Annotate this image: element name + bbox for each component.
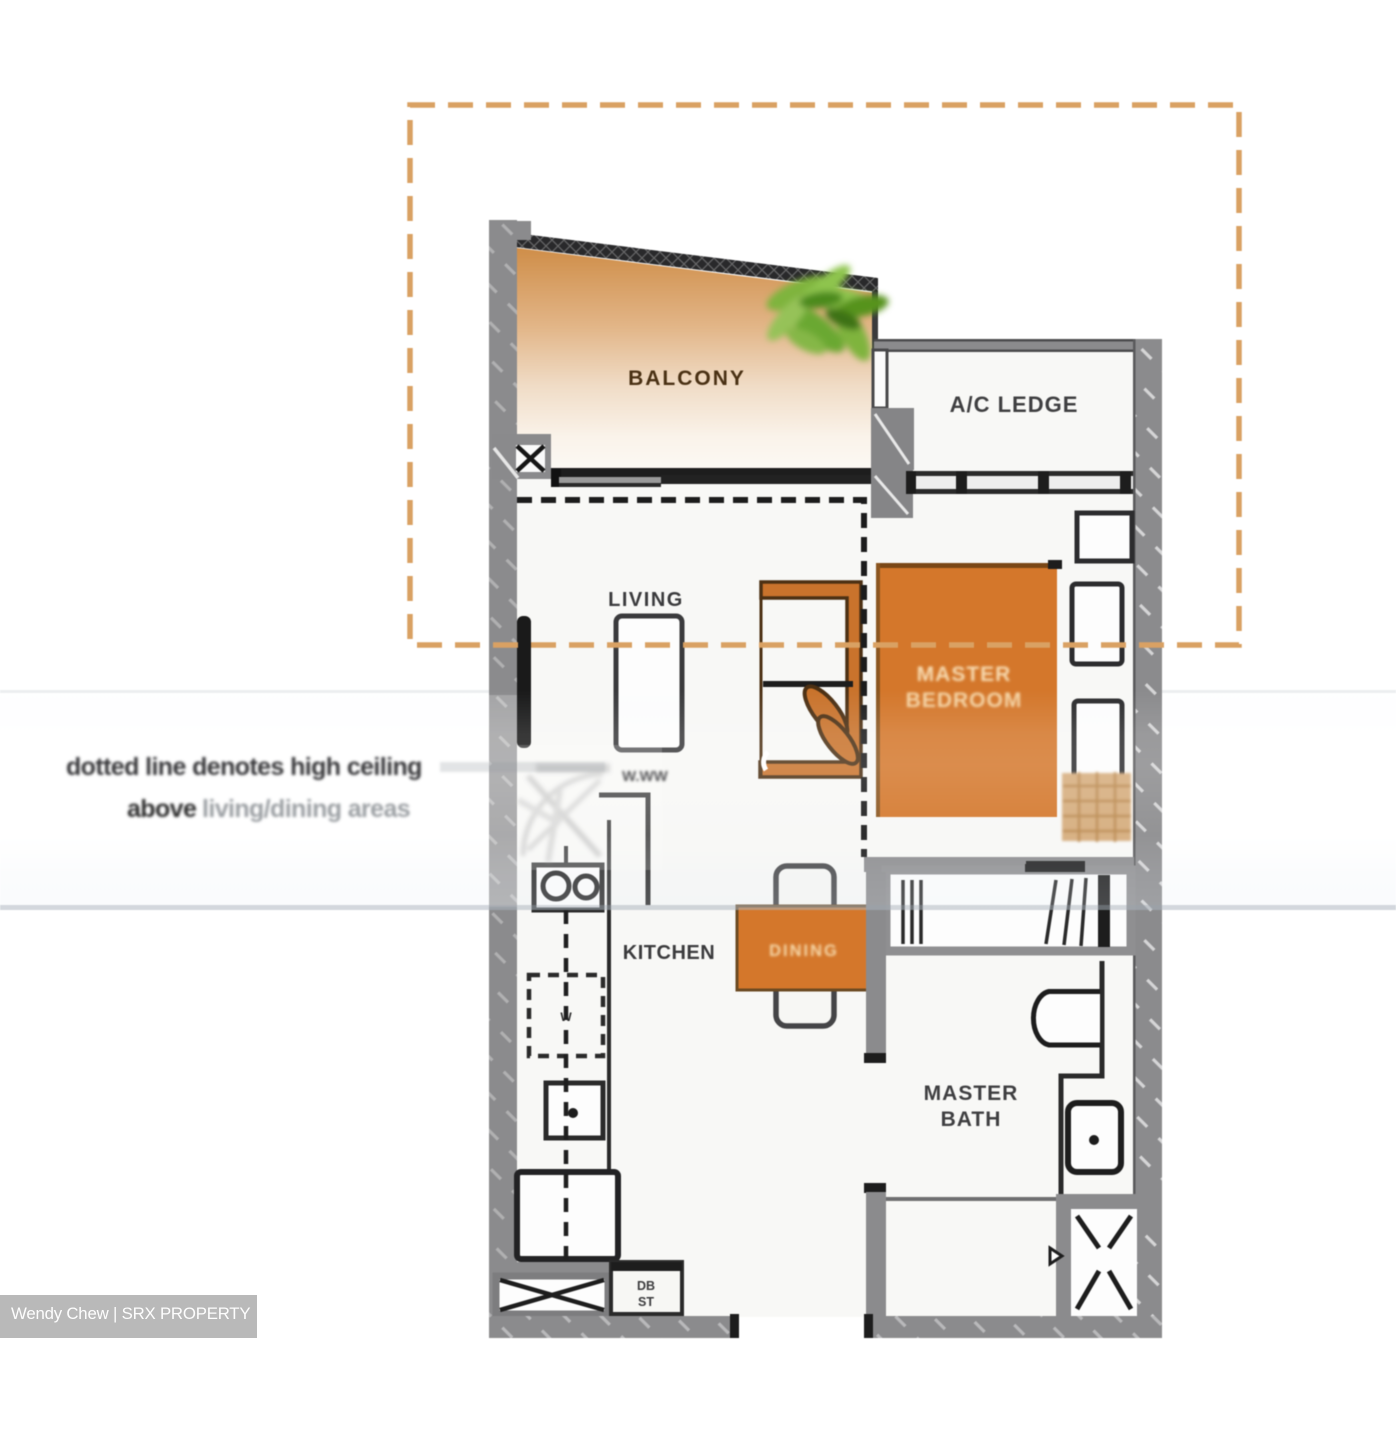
svg-text:above: above xyxy=(127,795,197,823)
svg-text:BALCONY: BALCONY xyxy=(628,367,746,390)
svg-text:living/dining areas: living/dining areas xyxy=(202,795,410,823)
svg-text:DB: DB xyxy=(637,1279,655,1293)
svg-text:MASTER: MASTER xyxy=(917,663,1012,686)
svg-text:A/C LEDGE: A/C LEDGE xyxy=(950,392,1079,417)
svg-text:DINING: DINING xyxy=(769,942,839,960)
svg-text:W.WW: W.WW xyxy=(622,768,669,785)
svg-text:dotted line denotes high ceili: dotted line denotes high ceiling xyxy=(66,753,422,781)
svg-text:LIVING: LIVING xyxy=(608,589,684,611)
svg-text:MASTER: MASTER xyxy=(924,1082,1019,1105)
svg-text:KITCHEN: KITCHEN xyxy=(623,942,715,964)
svg-text:ST: ST xyxy=(638,1295,654,1309)
svg-text:BATH: BATH xyxy=(941,1108,1002,1131)
